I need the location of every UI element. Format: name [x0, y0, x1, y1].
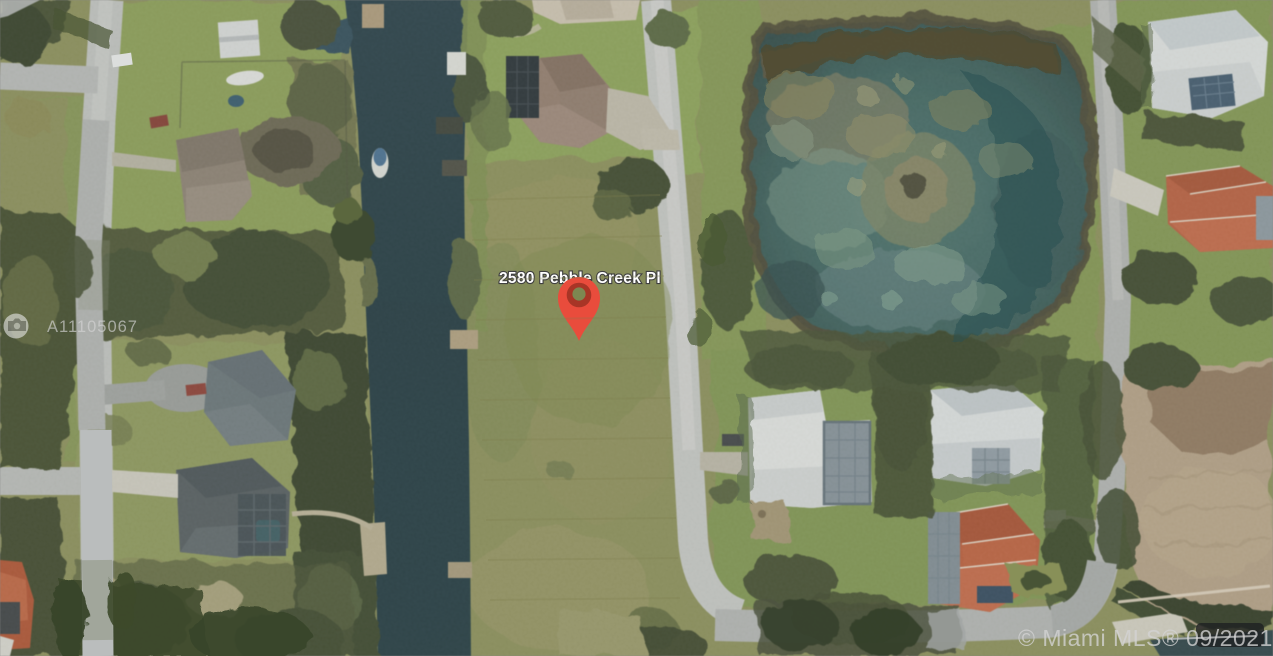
svg-text:A11105067: A11105067: [47, 318, 138, 336]
svg-text:© Miami MLS® 09/2021: © Miami MLS® 09/2021: [1018, 625, 1273, 651]
